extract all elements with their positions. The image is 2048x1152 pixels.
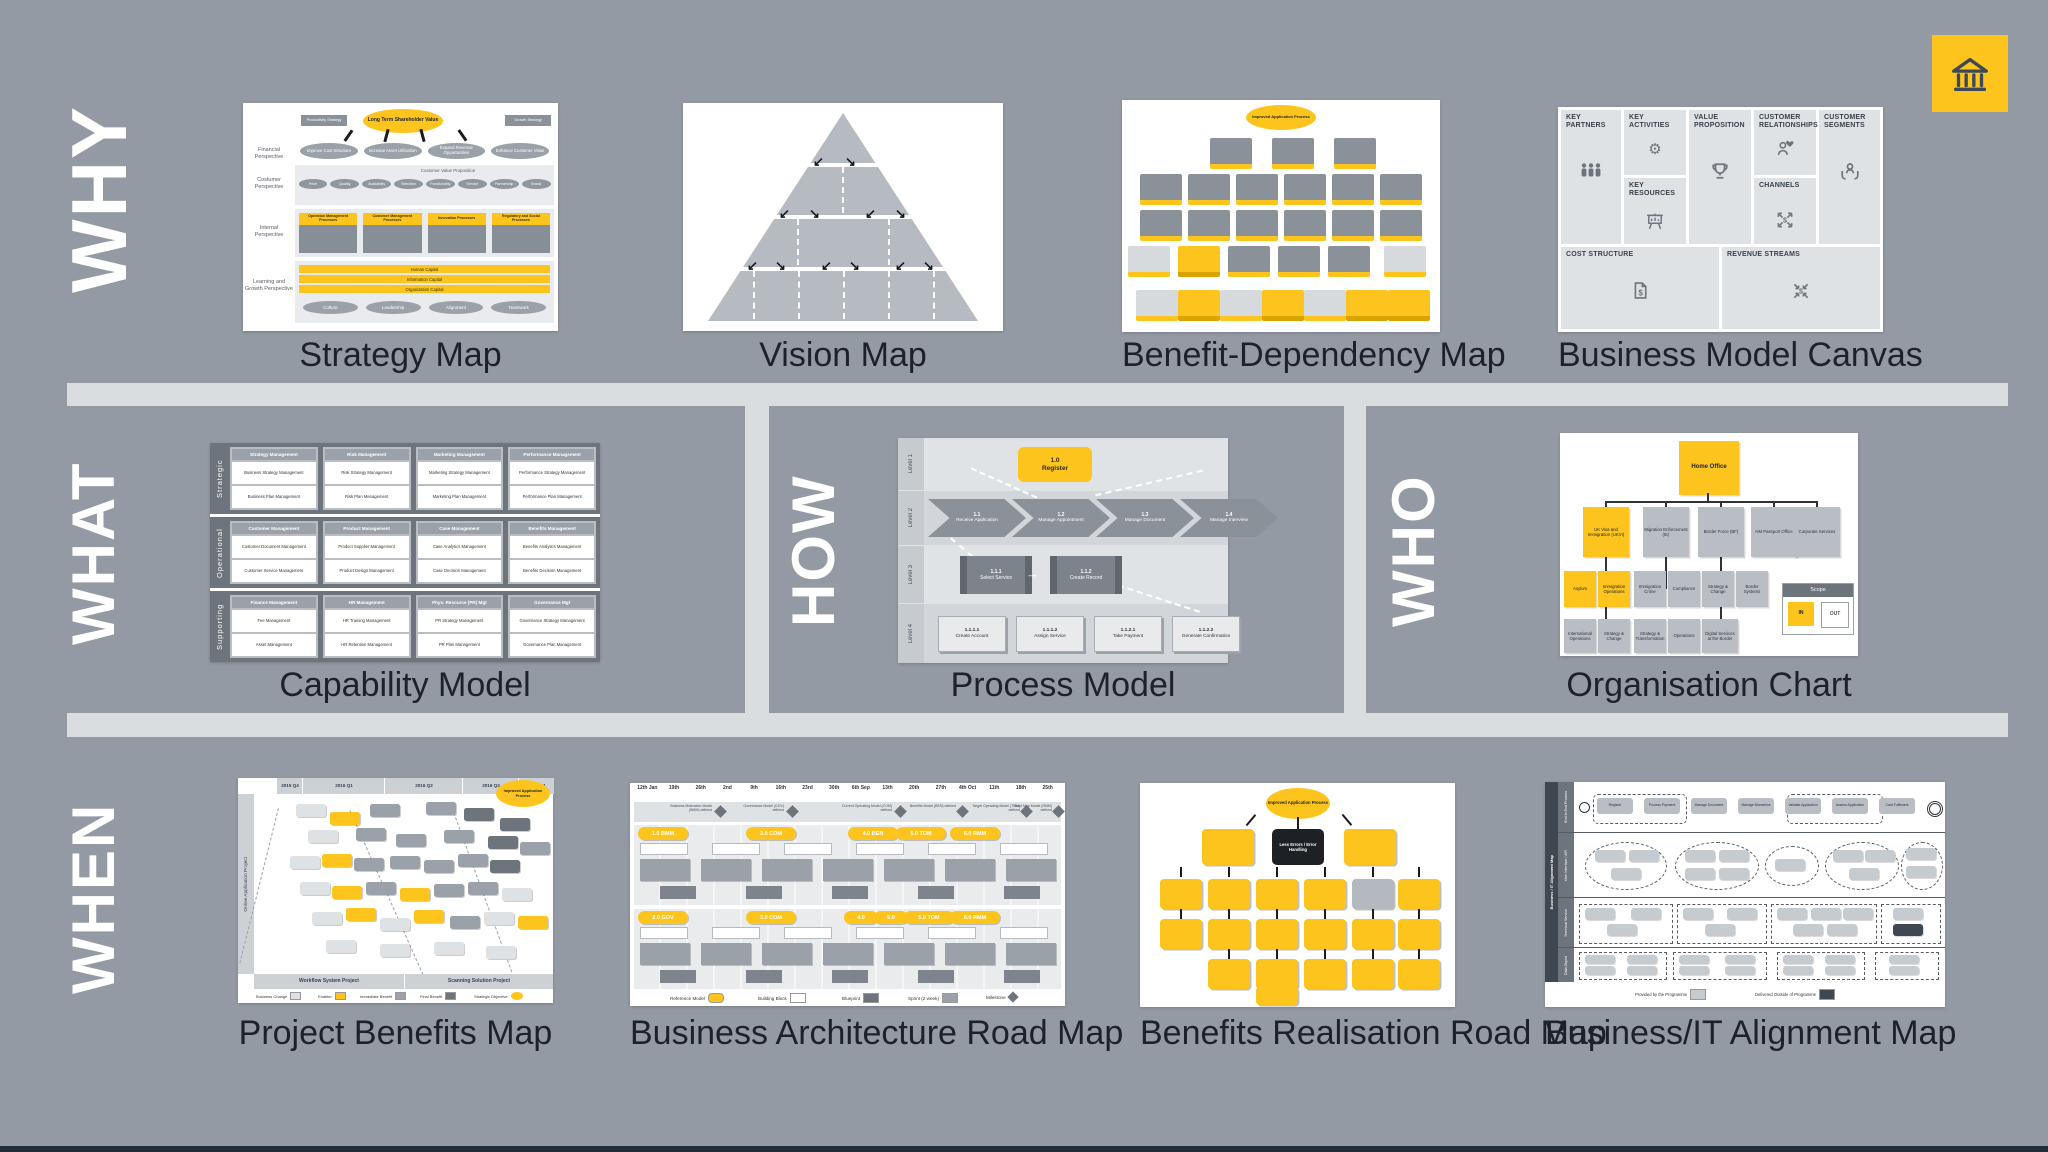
date-cell: 16th: [767, 786, 794, 792]
row-divider-top: [67, 383, 2008, 406]
ui-box: [1719, 850, 1749, 862]
benefit-node: [300, 882, 330, 895]
building-block: [784, 927, 832, 939]
blueprint-block: [762, 859, 812, 881]
bottom-axis-cell: Workflow System Project: [254, 974, 404, 989]
process-box: Assess Application: [1832, 798, 1868, 814]
sprints: [660, 970, 1040, 983]
blueprint-block: [640, 943, 690, 965]
business-model-canvas-thumbnail[interactable]: KEY PARTNERS KEY ACTIVITIES ⚙ KEY RESOUR…: [1558, 107, 1883, 332]
legend-item: Building Block: [758, 993, 806, 1003]
benefit-node: [1262, 290, 1304, 321]
sprint-block: [746, 970, 782, 983]
service-box: [1683, 908, 1713, 920]
data-object-box: [1889, 955, 1919, 964]
connector: [1707, 493, 1709, 501]
row-divider-bottom: [67, 713, 2008, 737]
org-unit-box: International Operations: [1564, 619, 1596, 653]
customer-relationships-label: CUSTOMER RELATIONSHIPS: [1754, 110, 1816, 130]
process-box: Manage Biometrics: [1738, 798, 1774, 814]
benefit-node: [326, 940, 356, 953]
building-block: [1000, 927, 1048, 939]
process-task-box: 1.1.2.2Generate Confirmation: [1172, 616, 1240, 652]
benefit-node: [322, 854, 352, 867]
date-cell: 2nd: [714, 786, 741, 792]
customer-value-proposition-label: Customer Value Proposition: [393, 167, 503, 175]
blueprint-block: [945, 859, 995, 881]
capability-group: HR ManagementHR Training ManagementHR Re…: [323, 595, 411, 658]
milestone-swatch: [1007, 991, 1018, 1002]
reference-model-pill: 4.0: [844, 911, 878, 924]
benefit-node: [1228, 246, 1270, 277]
arrow-line: [1418, 867, 1420, 877]
benefit-node: [1210, 138, 1252, 169]
objective-ellipse: Improved Application Process: [496, 780, 550, 807]
financial-goal-ellipse: Enhance Costumer Value: [491, 143, 549, 159]
arrow-down-left: ↙: [821, 259, 832, 272]
date-cell: 19th: [661, 786, 688, 792]
benefit-box: [1398, 959, 1440, 989]
blueprint-block: [945, 943, 995, 965]
benefit-node: [380, 918, 410, 931]
end-to-end-flow: RegisterProcess PaymentManage DocumentMa…: [1597, 798, 1927, 814]
date-cell: 6th Sep: [848, 786, 875, 792]
sprints: [660, 886, 1040, 899]
benefit-box: [1160, 919, 1202, 949]
benefit-node: [1188, 210, 1230, 241]
data-object-box: [1783, 966, 1813, 975]
benefit-node: [1178, 246, 1220, 277]
reference-model-pill: 6.0 RMM: [950, 911, 1000, 924]
svg-text:$: $: [1783, 216, 1787, 225]
supporting-capabilities: Finance ManagementFee ManagementAsset Ma…: [230, 595, 596, 658]
service-box: [1827, 924, 1857, 936]
timeline-cell: 2015 Q4: [276, 778, 303, 794]
lane-label: User Interface / API: [1558, 832, 1574, 898]
project-benefits-map-thumbnail[interactable]: 2015 Q4 2016 Q1 2016 Q2 2016 Q3 2016 Q4 …: [238, 778, 553, 1003]
benefits-realisation-road-map-thumbnail[interactable]: Improved Application Process Less Errors…: [1140, 783, 1455, 1007]
learning-value-ellipse: Teamwork: [491, 301, 546, 314]
org-unit-box: Corporate Services: [1794, 507, 1840, 557]
customer-attributes: PriceQualityAvailabilitySelectionFunctio…: [297, 179, 552, 189]
arrow-line: [1418, 909, 1420, 919]
arrow-line: [1246, 814, 1256, 826]
benefit-box: [1202, 829, 1254, 865]
sprint-block: [1004, 886, 1040, 899]
capability-item: Business Strategy Management: [232, 462, 316, 484]
easel-icon: [1624, 212, 1686, 230]
benefit-node: [370, 804, 400, 817]
process-box: Process Payment: [1644, 798, 1680, 814]
benefit-node: [1236, 174, 1278, 205]
building-blocks: [640, 927, 1048, 939]
capability-name: Case Management: [418, 523, 502, 534]
benefit-box: [1304, 919, 1346, 949]
data-object-box: [1725, 955, 1755, 964]
cost-structure-cell: COST STRUCTURE $: [1561, 247, 1719, 329]
capability-name: Risk Management: [325, 449, 409, 460]
arrow-down-right: ↘: [849, 259, 860, 272]
benefit-node: [312, 912, 342, 925]
lane-separator: [1574, 947, 1945, 948]
blueprint-block: [823, 859, 873, 881]
sprint-block: [918, 886, 954, 899]
legend-item: Sprint (2 week): [908, 993, 958, 1003]
capability-name: Strategy Management: [232, 449, 316, 460]
organisation-chart-thumbnail[interactable]: Home Office UK Visa and Immigration (UKV…: [1560, 433, 1858, 656]
bank-icon-glyph: [1947, 51, 1993, 97]
legend-item: Milestone: [986, 993, 1017, 1001]
internal-process-box: Customer Management Processes: [363, 213, 421, 253]
customer-attribute-ellipse: Partnership: [490, 179, 519, 189]
service-box: [1843, 908, 1873, 920]
milestone-label: Road Map Model (RMM) defined: [1002, 804, 1052, 812]
internal-process-header: Regulatory and Social Processes: [492, 213, 550, 225]
service-box: [1705, 924, 1735, 936]
trophy-icon: [1689, 162, 1751, 180]
benefit-node: [502, 888, 532, 901]
data-object-box: [1627, 955, 1657, 964]
reference-model-pill: 3.0 COM: [746, 827, 796, 840]
customer-attribute-ellipse: Selection: [394, 179, 423, 189]
org-unit-box: Operations: [1668, 619, 1700, 653]
internal-process-header: Innovation Processes: [428, 213, 486, 225]
benefit-box: [1304, 959, 1346, 989]
benefit-node: [1136, 290, 1178, 321]
scope-legend: Scope IN OUT: [1782, 583, 1854, 635]
customer-segments-label: CUSTOMER SEGMENTS: [1819, 110, 1880, 130]
org-unit-box: Migration Enforcement (IE): [1643, 507, 1689, 557]
financial-goal-ellipse: Improve Cost Structure: [300, 143, 358, 159]
building-block: [712, 927, 760, 939]
capability-item: Customer Document Management: [232, 536, 316, 558]
section-label-why: WHY: [60, 96, 138, 302]
benefit-node: [444, 830, 474, 843]
arrow-down-left: ↙: [865, 207, 876, 220]
capability-item: Benefits Decision Management: [510, 560, 594, 582]
connector: [1605, 501, 1817, 503]
process-task-box: 1.1.2.1Take Payment: [1094, 616, 1162, 652]
date-row: 12th Jan19th26th2nd9th16th23rd30th6th Se…: [634, 786, 1061, 792]
arrow-down-right: ↘: [775, 259, 786, 272]
benefit-node: [426, 802, 456, 815]
service-box: [1777, 908, 1807, 920]
cost-structure-label: COST STRUCTURE: [1561, 247, 1719, 259]
benefit-node: [346, 908, 376, 921]
building-block: [856, 843, 904, 855]
benefit-box: [1256, 879, 1298, 909]
capability-group: Strategy ManagementBusiness Strategy Man…: [230, 447, 318, 510]
key-activities-label: KEY ACTIVITIES: [1624, 110, 1686, 130]
benefit-box: [1352, 919, 1394, 949]
strategy-map-thumbnail[interactable]: Financial Perspective Costumer Perspecti…: [243, 103, 558, 331]
benefit-node: [434, 942, 464, 955]
capability-item: HR Training Management: [325, 610, 409, 632]
benefit-node: [400, 888, 430, 901]
benefit-node: [1236, 210, 1278, 241]
arrow-down-right: ↘: [895, 207, 906, 220]
process-task-box: 1.1.1.2Assign Service: [1016, 616, 1084, 652]
capability-item: Case Decision Management: [418, 560, 502, 582]
internal-process-box: Regulatory and Social Processes: [492, 213, 550, 253]
capability-item: Fee Management: [232, 610, 316, 632]
section-label-who: WHO: [1384, 462, 1444, 640]
benefit-box: [1256, 959, 1298, 989]
capability-group: Product ManagementProduct Supplier Manag…: [323, 521, 411, 584]
capability-item: Product Supplier Management: [325, 536, 409, 558]
level-3-label: Level 3: [898, 546, 924, 603]
internal-process-header: Customer Management Processes: [363, 213, 421, 225]
arrow-line: [1180, 909, 1182, 919]
business-change-swatch: [290, 992, 301, 1000]
data-object-box: [1585, 966, 1615, 975]
timeline-cell: 2016 Q1: [302, 778, 385, 794]
perspective-label: Internal Perspective: [245, 225, 293, 238]
capability-name: Performance Management: [510, 449, 594, 460]
customer-attribute-ellipse: Functionality: [426, 179, 455, 189]
financial-goals: Improve Cost StructureIncrease Asset Uti…: [297, 143, 552, 159]
enabler-swatch: [335, 992, 346, 1000]
financial-goal-ellipse: Increase Asset Utilisation: [364, 143, 422, 159]
arrow-down-left: ↙: [895, 259, 906, 272]
legend-item: Reference Model: [670, 993, 724, 1003]
tier-divider: [842, 167, 844, 213]
capability-item: Asset Management: [232, 634, 316, 656]
arrow-line: [1372, 867, 1374, 877]
immediate-benefit-swatch: [395, 992, 406, 1000]
arrow-line: [1372, 949, 1374, 959]
programme-swatch: [1690, 989, 1706, 1000]
process-box: Validate Application: [1785, 798, 1821, 814]
business-architecture-road-map-thumbnail[interactable]: 12th Jan19th26th2nd9th16th23rd30th6th Se…: [630, 783, 1065, 1006]
arrow-down-right: ↘: [809, 207, 820, 220]
timeline-cell: 2016 Q2: [384, 778, 463, 794]
date-cell: 27th: [928, 786, 955, 792]
sprint-block: [746, 886, 782, 899]
process-task-box: 1.1.1.1Create Account: [938, 616, 1006, 652]
building-block: [856, 927, 904, 939]
row-label-supporting: Supporting: [215, 595, 224, 659]
arrow: [457, 129, 467, 141]
capability-item: PR Strategy Management: [418, 610, 502, 632]
process-step-chevron: 1.3Manage Document: [1096, 499, 1194, 537]
reference-model-pill: 1.0 BMM: [638, 827, 688, 840]
benefit-node: [1220, 290, 1262, 321]
tier-divider: [797, 219, 799, 265]
benefit-node: [1128, 246, 1170, 277]
arrow-down-left: ↙: [747, 259, 758, 272]
perspective-label: Learning and Growth Perspective: [245, 279, 293, 292]
benefit-node: [354, 858, 384, 871]
vision-map-thumbnail[interactable]: ↙ ↘ ↙ ↘ ↙ ↘ ↙ ↘ ↙ ↘ ↙ ↘: [683, 103, 1003, 331]
process-model-thumbnail[interactable]: Level 1 Level 2 Level 3 Level 4 1.0Regis…: [898, 438, 1228, 663]
benefit-node: [390, 856, 420, 869]
stream-2-band: 2.0 GOV 3.0 COM 4.0 5.0 5.0 TOM 6.0 RMM: [634, 909, 1061, 989]
capability-group: Finance ManagementFee ManagementAsset Ma…: [230, 595, 318, 658]
benefit-node: [486, 946, 516, 959]
org-unit-box: Border Systems: [1736, 571, 1768, 607]
strategy-map-title: Strategy Map: [243, 338, 558, 372]
arrow-down-right: ↘: [845, 155, 856, 168]
blueprint-block: [884, 943, 934, 965]
benefit-node: [356, 828, 386, 841]
arrow-line: [1324, 909, 1326, 919]
bank-icon[interactable]: [1932, 35, 2008, 112]
benefit-box: [1352, 879, 1394, 909]
legend-item: Final Benefit: [420, 992, 456, 1000]
benefit-node: [396, 834, 426, 847]
column-divider-left: [745, 406, 769, 713]
date-cell: 26th: [687, 786, 714, 792]
data-object-box: [1679, 955, 1709, 964]
lane-label: End to End Process: [1558, 782, 1574, 832]
key-activities-cell: KEY ACTIVITIES ⚙: [1624, 110, 1686, 175]
org-unit-box: Strategy & Change: [1598, 619, 1630, 653]
building-block: [928, 843, 976, 855]
org-unit-box: Border Force (BF): [1698, 507, 1744, 557]
benefit-node: [1284, 210, 1326, 241]
customer-attribute-ellipse: Price: [299, 179, 328, 189]
arrow-line: [1342, 814, 1352, 826]
reference-model-pill: 5.0 TOM: [896, 827, 946, 840]
building-block: [928, 927, 976, 939]
benefit-node: [1278, 246, 1320, 277]
service-box: [1607, 924, 1637, 936]
capability-model-thumbnail[interactable]: Strategic Operational Supporting Strateg…: [210, 443, 600, 662]
benefit-node: [468, 882, 498, 895]
sprint-swatch: [942, 993, 958, 1003]
arrow-line: [1324, 949, 1326, 959]
capability-group: Phys. Resource (PR) MgtPR Strategy Manag…: [416, 595, 504, 658]
building-block: [712, 843, 760, 855]
arrow-line: [1276, 949, 1278, 959]
benefit-box: [1398, 879, 1440, 909]
org-unit-box: Digital Services at the Border: [1702, 619, 1738, 653]
benefit-node: [290, 856, 320, 869]
ui-box: [1849, 868, 1879, 880]
capability-name: Governance Mgt: [510, 597, 594, 608]
building-block: [640, 843, 688, 855]
arrow-line: [1276, 909, 1278, 919]
tier-divider: [888, 271, 890, 319]
process-step-chevron: 1.4Manage Interview: [1180, 499, 1278, 537]
org-unit-box: Strategy & Transformation: [1634, 619, 1666, 653]
legend-item: Strategic Objective: [474, 992, 523, 1000]
benefit-node: [450, 916, 480, 929]
benefit-node: [366, 882, 396, 895]
benefit-node: [296, 804, 326, 817]
scope-label: Scope: [1783, 584, 1853, 597]
benefit-node: [518, 916, 548, 929]
ui-box: [1775, 859, 1805, 871]
ui-box: [1595, 850, 1625, 862]
benefit-node: [1388, 290, 1430, 321]
external-swatch: [1819, 989, 1835, 1000]
blueprint-block: [1006, 943, 1056, 965]
arrow-line: [1418, 949, 1420, 959]
customer-attribute-ellipse: Service: [458, 179, 487, 189]
objective-ellipse: Improved Application Process: [1246, 105, 1316, 130]
benefit-node: [1328, 246, 1370, 277]
internal-process-header: Operation Management Processes: [299, 213, 357, 225]
level-1-label: Level 1: [898, 438, 924, 490]
capability-model-title: Capability Model: [210, 668, 600, 702]
ui-box: [1611, 868, 1641, 880]
benefit-node: [308, 830, 338, 843]
benefit-node: [1140, 174, 1182, 205]
channels-label: CHANNELS: [1754, 178, 1816, 190]
level-2-label: Level 2: [898, 491, 924, 545]
business-it-alignment-map-thumbnail[interactable]: Business / IT Alignment Map End to End P…: [1545, 782, 1945, 1007]
final-benefit-swatch: [445, 992, 456, 1000]
benefit-node: [1140, 210, 1182, 241]
row-separator: [210, 588, 600, 591]
capability-group: Benefits ManagementBenefits Analytics Ma…: [508, 521, 596, 584]
benefit-dependency-map-thumbnail[interactable]: Improved Application Process: [1122, 100, 1440, 332]
lane-separator: [1574, 832, 1945, 833]
org-unit-box: HM Passport Office: [1751, 507, 1797, 557]
benefit-node: [484, 912, 514, 925]
sprint-block: [832, 970, 868, 983]
arrow-line: [1324, 867, 1326, 877]
benefit-box: [1160, 879, 1202, 909]
revenue-icon: $: [1722, 281, 1880, 301]
org-unit-box: Asylum: [1564, 571, 1596, 607]
key-partners-label: KEY PARTNERS: [1561, 110, 1621, 130]
capability-item: Business Plan Management: [232, 486, 316, 508]
sprint-block: [660, 886, 696, 899]
capability-name: Customer Management: [232, 523, 316, 534]
key-partners-cell: KEY PARTNERS: [1561, 110, 1621, 244]
building-blocks: [640, 843, 1048, 855]
scope-out: OUT: [1821, 602, 1849, 628]
revenue-streams-cell: REVENUE STREAMS $: [1722, 247, 1880, 329]
learning-values: CultureLeadershipAlignmentTeamwork: [299, 301, 550, 314]
scope-in: IN: [1788, 602, 1814, 626]
benefit-node: [1334, 138, 1376, 169]
date-cell: 23rd: [794, 786, 821, 792]
customer-relationships-cell: CUSTOMER RELATIONSHIPS: [1754, 110, 1816, 175]
building-block: [784, 843, 832, 855]
milestone-label: Current Operating Model (COM) defined: [842, 804, 892, 812]
reference-model-pill: 4.0 BEN: [848, 827, 898, 840]
column-divider-right: [1344, 406, 1366, 713]
capability-group: Case ManagementCase Analytics Management…: [416, 521, 504, 584]
service-box-external: [1893, 924, 1923, 936]
milestone-label: Business Motivation Model (BMM) defined: [662, 804, 712, 812]
capability-item: Governance Strategy Management: [510, 610, 594, 632]
benefit-node: [1380, 174, 1422, 205]
capability-name: Benefits Management: [510, 523, 594, 534]
blueprint-block: [884, 859, 934, 881]
benefit-node: [424, 860, 454, 873]
lane-label: Data Object: [1558, 947, 1574, 983]
ui-box: [1629, 850, 1659, 862]
benefit-box: [1352, 959, 1394, 989]
sprint-block: [918, 970, 954, 983]
benefit-node: [434, 884, 464, 897]
internal-process-box: Operation Management Processes: [299, 213, 357, 253]
row-separator: [210, 514, 600, 517]
date-cell: 30th: [821, 786, 848, 792]
legend-item: Provided by the Programme: [1635, 989, 1706, 1000]
customer-segments-cell: CUSTOMER SEGMENTS: [1819, 110, 1880, 244]
benefit-box: [1208, 879, 1250, 909]
lane-label: Technical Service: [1558, 897, 1574, 948]
benefit-box: [1344, 829, 1396, 865]
benefit-box: [1208, 919, 1250, 949]
capability-group: Performance ManagementPerformance Strate…: [508, 447, 596, 510]
